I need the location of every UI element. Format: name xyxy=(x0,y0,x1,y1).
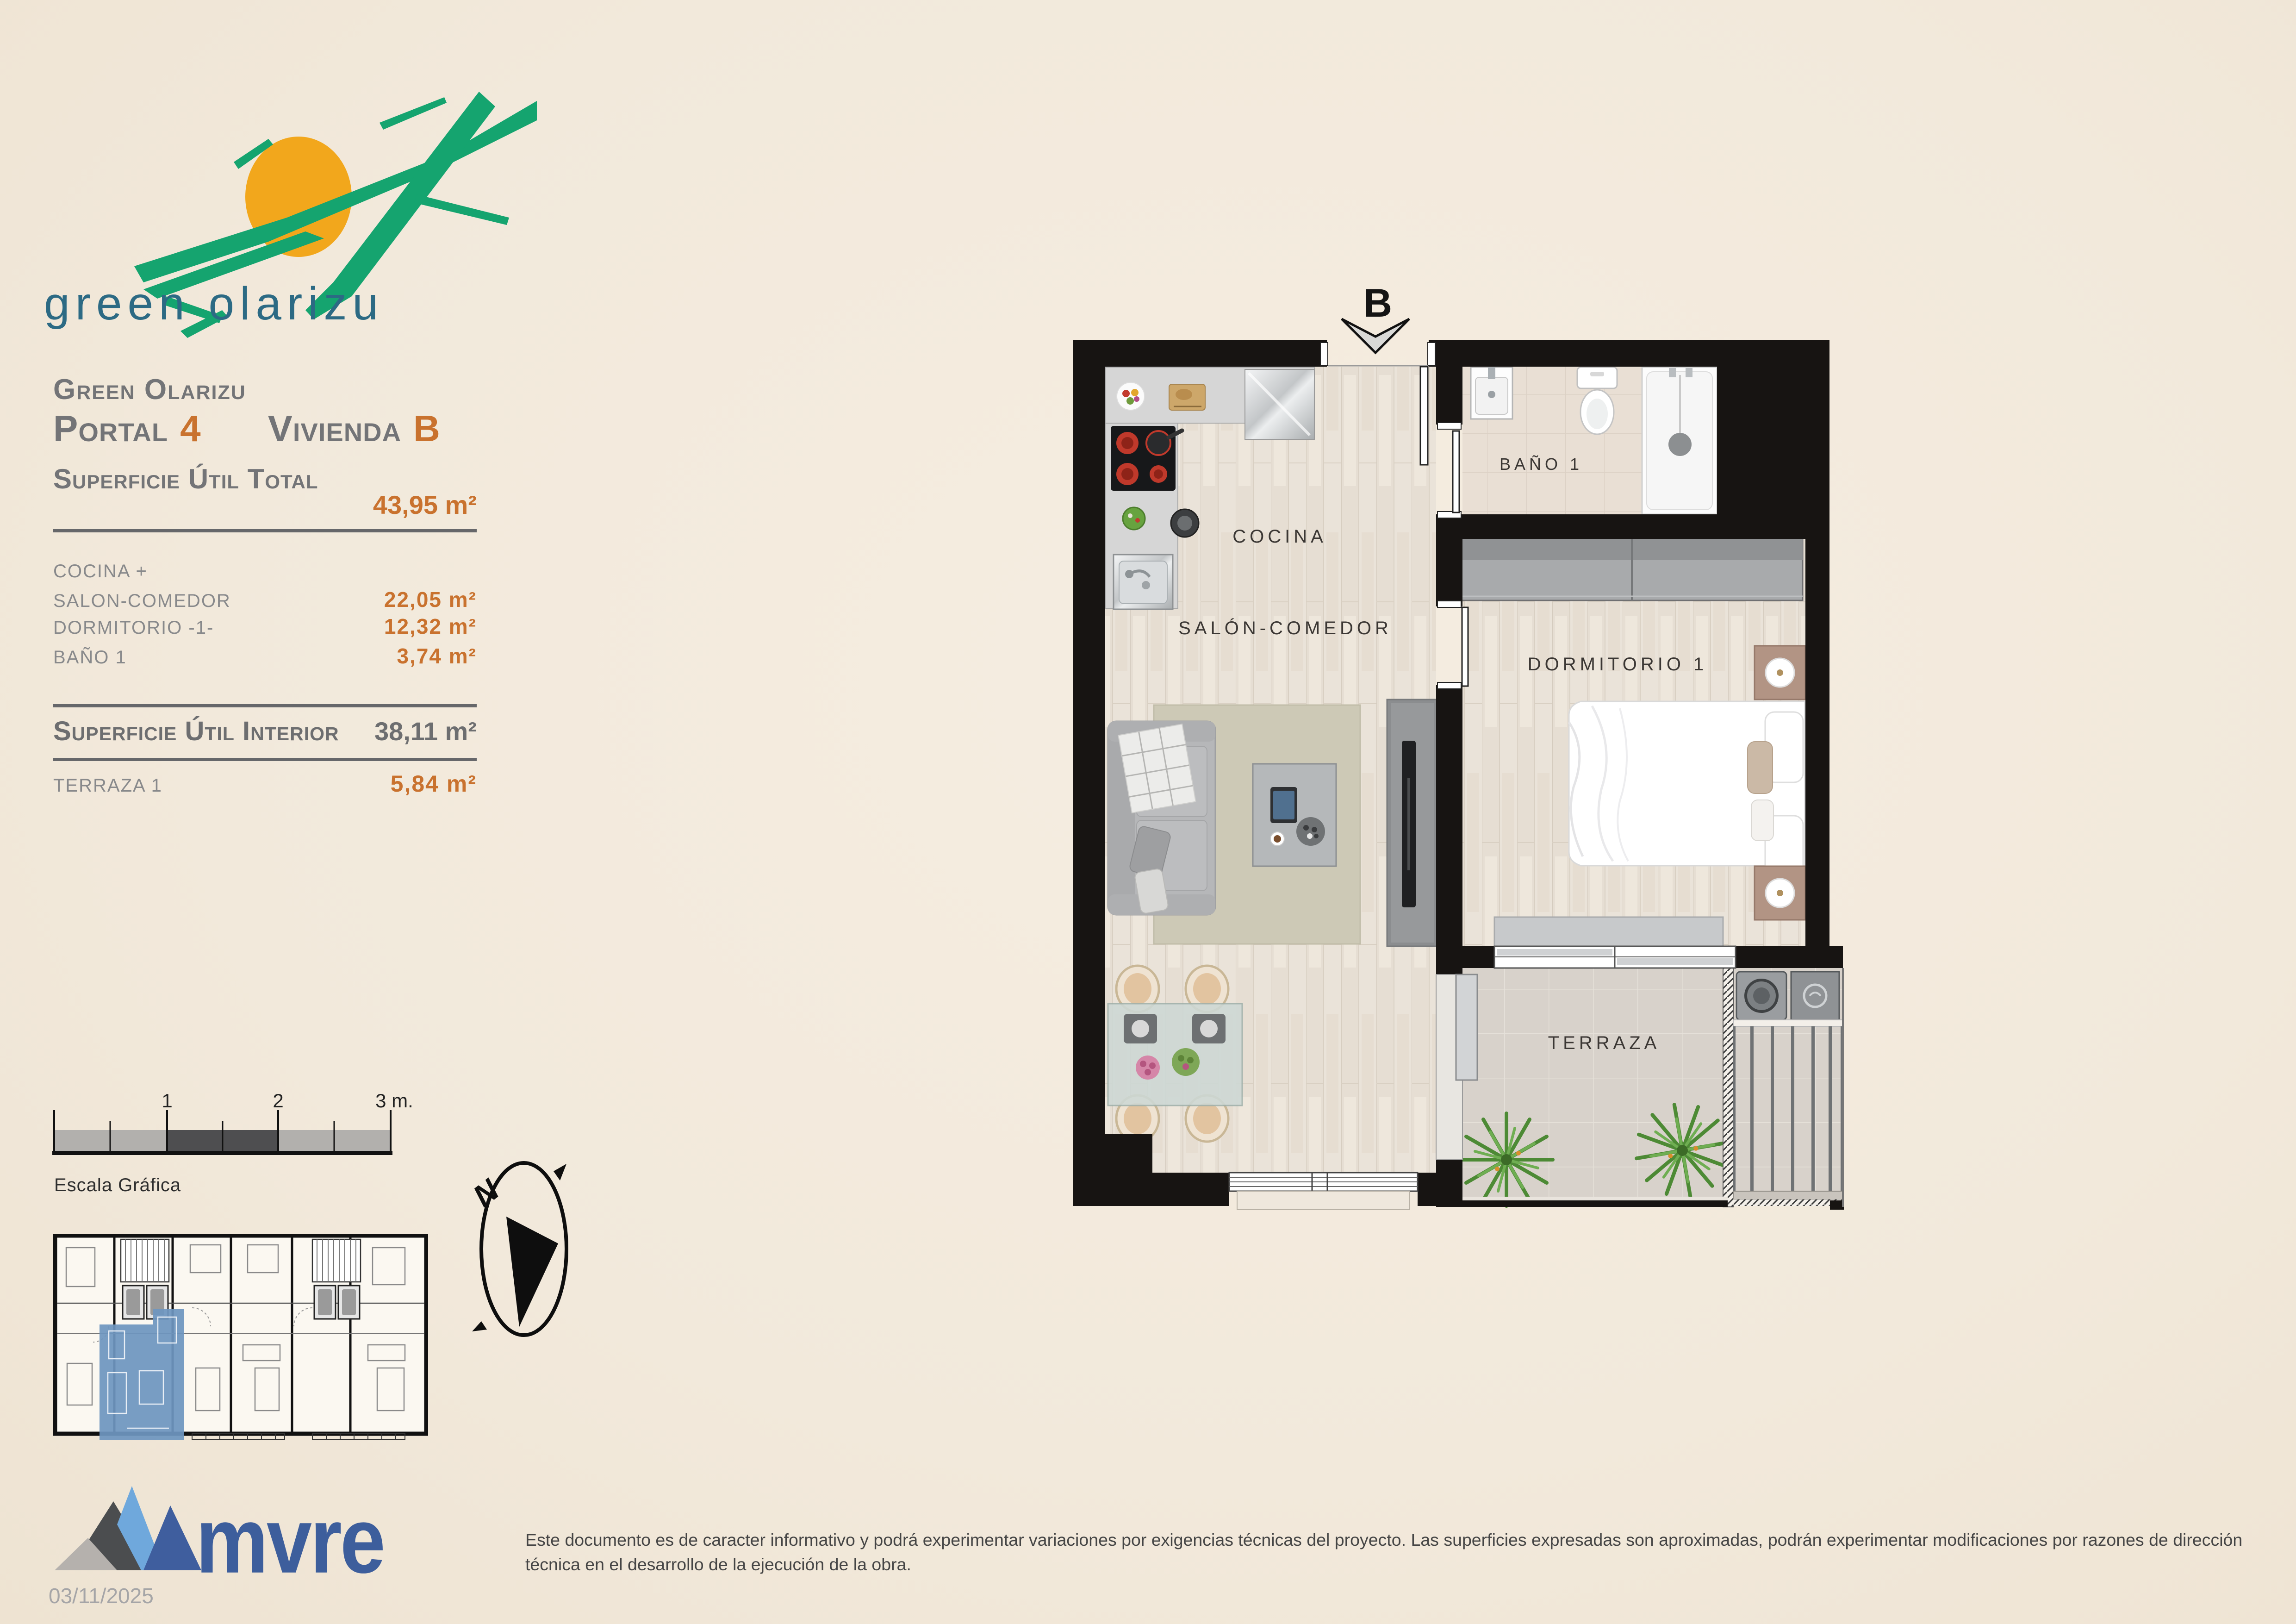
logo-wordmark: green olarizu xyxy=(44,278,384,330)
entrance-marker-label: B xyxy=(1363,281,1392,325)
portal-label: Portal xyxy=(53,407,168,450)
highlighted-unit xyxy=(100,1309,184,1440)
area-row-cocina: COCINA + xyxy=(53,561,477,582)
tv-unit xyxy=(1387,700,1438,946)
fruit-bowl xyxy=(1117,382,1145,410)
interior-area-row: Superficie Útil Interior 38,11 m² xyxy=(53,716,477,747)
room-label-terraza: TERRAZA xyxy=(1548,1033,1661,1053)
divider-line xyxy=(53,704,477,707)
project-name: Green Olarizu xyxy=(53,373,246,406)
scale-bar: 1 2 3 m. xyxy=(51,1088,412,1167)
compass-north-icon: N xyxy=(467,1148,583,1352)
cushion xyxy=(1748,742,1773,793)
bedroom-window xyxy=(1494,946,1736,968)
water-heater xyxy=(1791,972,1839,1020)
area-row-salon: SALON-COMEDOR 22,05 m² xyxy=(53,587,477,612)
wardrobe xyxy=(1461,533,1803,600)
room-label-bano: BAÑO 1 xyxy=(1500,455,1583,474)
portal-number: 4 xyxy=(180,407,201,450)
cooktop xyxy=(1111,426,1182,491)
bedroom-door xyxy=(1437,601,1468,689)
blind-box xyxy=(1494,917,1723,946)
total-area-value: 43,95 m² xyxy=(53,490,477,520)
interior-label: Superficie Útil Interior xyxy=(53,716,339,747)
plate-decor xyxy=(1123,507,1145,530)
document-date: 03/11/2025 xyxy=(49,1583,154,1608)
cushion xyxy=(1751,800,1773,841)
floor-plan: COCINA SALÓN-COMEDOR BAÑO 1 DORMITORIO 1… xyxy=(1060,278,1893,1231)
terraza-label: TERRAZA 1 xyxy=(53,775,162,796)
legal-disclaimer: Este documento es de caracter informativ… xyxy=(525,1528,2284,1577)
sofa xyxy=(1108,721,1215,915)
room-label-cocina: COCINA xyxy=(1232,526,1327,547)
bed xyxy=(1569,701,1805,886)
shower xyxy=(1642,367,1717,514)
scale-tick-2: 2 xyxy=(273,1090,283,1112)
green-olarizu-logo: green olarizu xyxy=(28,79,537,338)
bathroom-sink xyxy=(1471,367,1512,419)
area-row-bano: BAÑO 1 3,74 m² xyxy=(53,643,477,668)
divider-line xyxy=(53,529,477,532)
area-row-dormitorio: DORMITORIO -1- 12,32 m² xyxy=(53,614,477,639)
floorplan-sheet: green olarizu Green Olarizu Portal 4 Viv… xyxy=(0,0,2296,1624)
louver-divider xyxy=(1723,968,1733,1207)
plaid-throw xyxy=(1118,724,1195,813)
nightstand xyxy=(1755,646,1805,700)
scale-tick-1: 1 xyxy=(162,1090,172,1112)
row-label: DORMITORIO -1- xyxy=(53,618,214,638)
toilet xyxy=(1577,367,1617,434)
row-label: COCINA + xyxy=(53,561,148,582)
scale-tick-3: 3 m. xyxy=(375,1090,412,1112)
row-value: 3,74 m² xyxy=(397,643,477,668)
nightstand xyxy=(1755,866,1805,920)
row-value: 22,05 m² xyxy=(384,587,477,612)
bathroom-door xyxy=(1437,423,1461,518)
washing-machine xyxy=(1736,972,1786,1020)
interior-value: 38,11 m² xyxy=(374,716,477,746)
row-label: SALON-COMEDOR xyxy=(53,591,231,612)
brand-wordmark: mvre xyxy=(196,1487,384,1594)
terraza-value: 5,84 m² xyxy=(391,770,477,797)
row-value: 12,32 m² xyxy=(384,614,477,639)
vivienda-label: Vivienda xyxy=(268,407,402,450)
room-label-dormitorio: DORMITORIO 1 xyxy=(1528,654,1708,675)
coffee-table xyxy=(1253,764,1336,866)
divider-line xyxy=(53,758,477,761)
area-row-terraza: TERRAZA 1 5,84 m² xyxy=(53,770,477,797)
building-key-plan xyxy=(53,1234,428,1442)
unit-identifier: Portal 4 Vivienda B xyxy=(53,407,441,450)
kitchen-sink xyxy=(1114,555,1173,609)
living-window xyxy=(1229,1173,1418,1210)
vivienda-letter: B xyxy=(413,407,441,450)
scale-bar-title: Escala Gráfica xyxy=(54,1175,181,1196)
room-label-salon: SALÓN-COMEDOR xyxy=(1178,618,1392,638)
row-label: BAÑO 1 xyxy=(53,647,127,668)
